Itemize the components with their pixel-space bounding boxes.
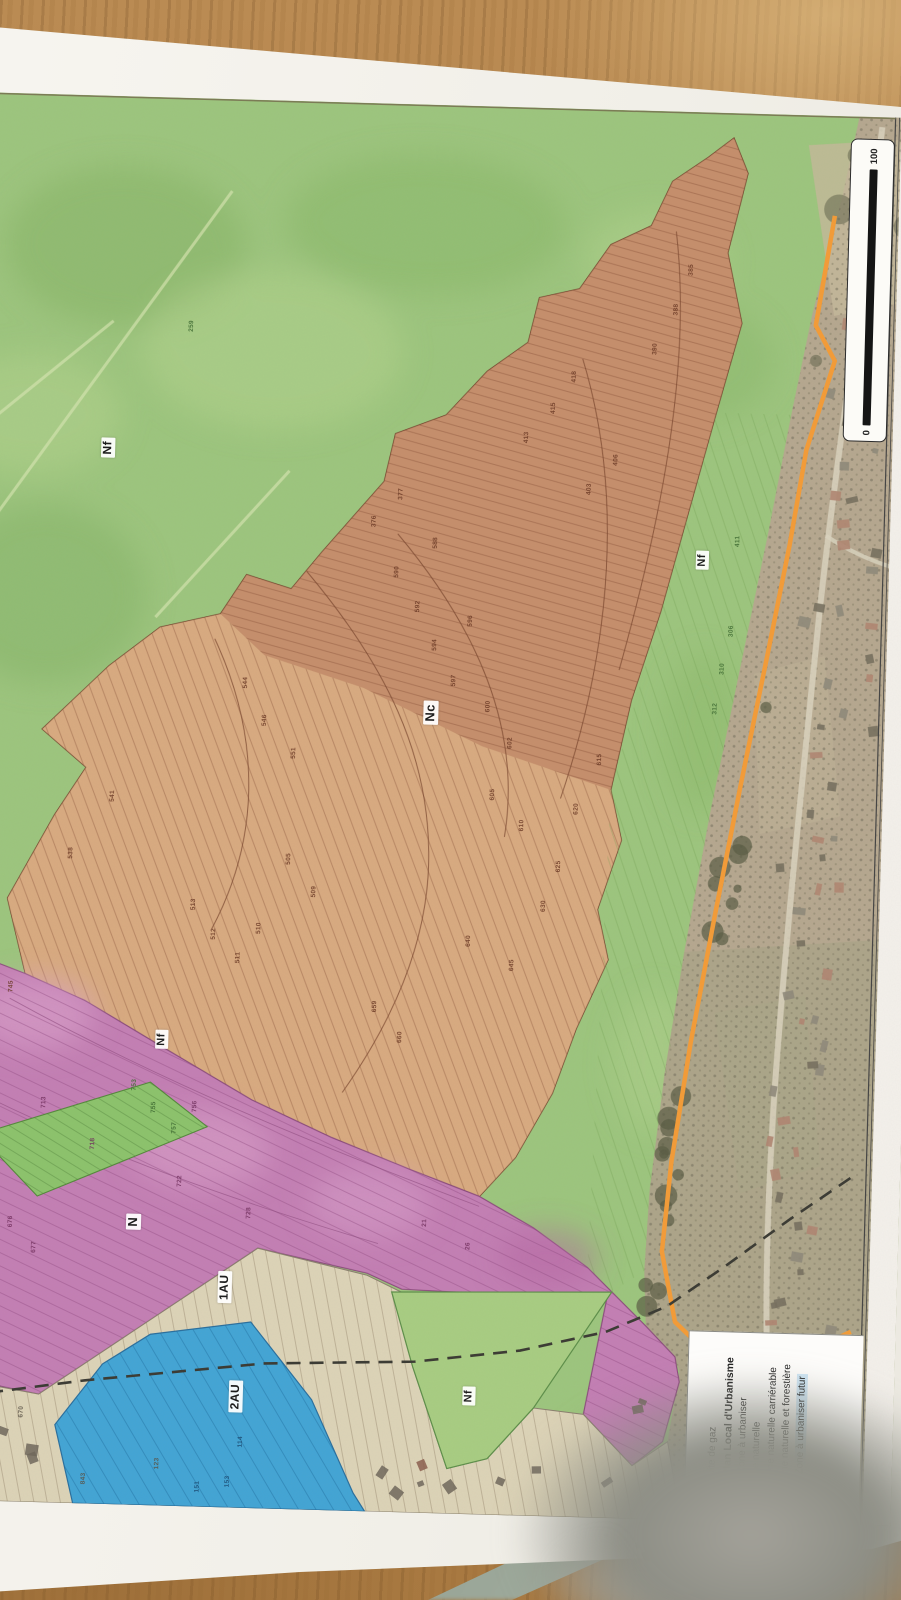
zone-label-n: N bbox=[126, 1214, 141, 1230]
zone-label-nf: Nf bbox=[101, 438, 115, 458]
scale-bar: 0 100 bbox=[843, 138, 895, 442]
scale-bar-fill bbox=[862, 169, 877, 425]
scale-end: 100 bbox=[868, 148, 879, 164]
zone-label-1au: 1AU bbox=[217, 1271, 232, 1303]
paper-sheet: 5945975925905885966006026056106156206256… bbox=[0, 0, 901, 1600]
zone-label-nc: Nc bbox=[423, 701, 439, 725]
zone-label-nf: Nf bbox=[462, 1387, 475, 1406]
zone-label-nf: Nf bbox=[696, 551, 709, 570]
zoning-map: 5945975925905885966006026056106156206256… bbox=[0, 92, 901, 1526]
zone-labels-layer: NfNcNfNfN1AUNf2AU bbox=[0, 92, 901, 1526]
floor-blur bbox=[511, 1370, 901, 1600]
zone-label-2au: 2AU bbox=[228, 1381, 243, 1413]
zone-label-nf: Nf bbox=[155, 1030, 168, 1049]
photo-of-plu-map: 5945975925905885966006026056106156206256… bbox=[0, 0, 901, 1600]
scale-start: 0 bbox=[860, 429, 871, 435]
